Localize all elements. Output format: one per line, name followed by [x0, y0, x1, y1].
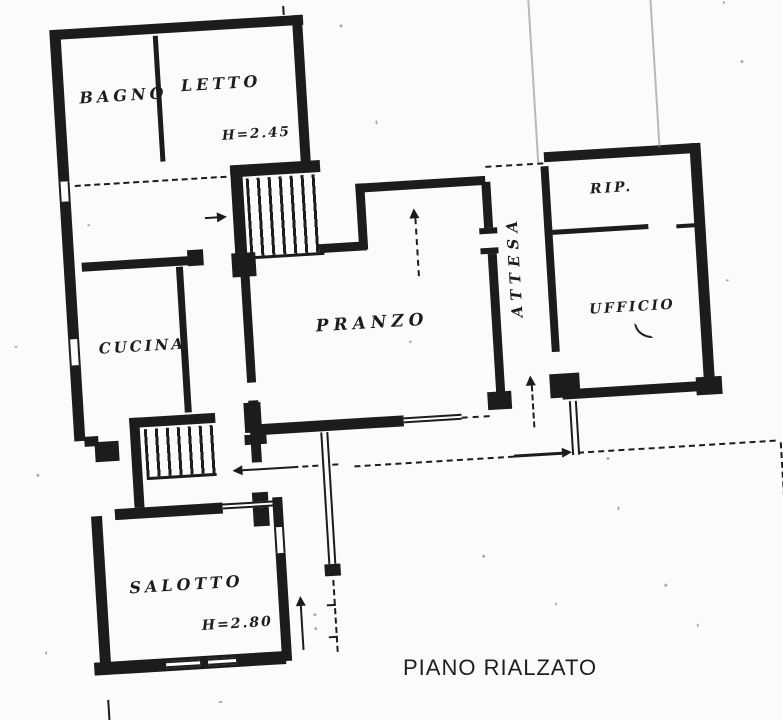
exit-arrow-line	[242, 466, 298, 471]
room-label-cucina: CUCINA	[98, 335, 186, 358]
partition-rip-ufficio	[552, 224, 648, 235]
projection-arrow-icon	[562, 447, 573, 458]
salotto-wall-right	[272, 497, 284, 528]
room-label-pranzo: PRANZO	[315, 310, 429, 337]
pranzo-wall-step	[355, 183, 368, 249]
scan-speck	[375, 120, 377, 124]
scan-speck	[45, 652, 47, 655]
floorplan-drawing: BAGNO LETTO H=2.45 CUCINA PRANZO SALOTTO…	[0, 0, 783, 720]
projection-dashline	[578, 440, 776, 454]
wall-pillar	[187, 249, 204, 266]
stair-wall	[129, 417, 144, 507]
exterior-wall-right	[689, 143, 715, 393]
attesa-partition	[540, 166, 559, 352]
north-arrow-icon	[295, 596, 306, 607]
stairs-hatch-icon	[144, 425, 217, 477]
window	[274, 527, 286, 554]
doorway-dashline	[462, 415, 490, 419]
boundary-line	[649, 0, 660, 147]
wall-pillar	[244, 434, 267, 445]
projection-dashline	[354, 456, 514, 468]
scan-speck	[555, 602, 557, 605]
window	[68, 339, 81, 366]
exit-arrow-dashline	[302, 463, 338, 467]
scan-speck	[482, 555, 485, 558]
room-label-salotto: SALOTTO	[129, 571, 244, 597]
exterior-wall-left	[60, 201, 79, 339]
salotto-wall-top	[115, 503, 223, 521]
scan-speck	[606, 457, 609, 460]
floorplan-sheet: BAGNO LETTO H=2.45 CUCINA PRANZO SALOTTO…	[0, 0, 783, 720]
partition-stub	[676, 223, 696, 228]
scan-speck	[87, 224, 90, 226]
pranzo-wall-left	[240, 270, 256, 382]
doorway-dashline	[485, 162, 543, 168]
scan-speck	[664, 584, 667, 587]
scan-speck	[14, 346, 17, 348]
scan-speck	[339, 24, 342, 27]
scan-speck	[219, 701, 223, 703]
height-note-salotto: H=2.80	[201, 614, 273, 634]
scan-speck	[409, 341, 412, 343]
salotto-wall-left	[91, 516, 112, 674]
terrace-edge-dashline	[332, 580, 338, 652]
pranzo-wall-top	[355, 176, 485, 193]
scan-speck	[313, 613, 316, 616]
pranzo-wall-right	[481, 182, 493, 228]
ufficio-wall-bottom	[562, 381, 702, 400]
entry-arrow-icon	[409, 208, 420, 219]
room-label-letto: LETTO	[180, 71, 262, 95]
exterior-wall-top	[51, 15, 303, 40]
scan-speck	[617, 506, 619, 510]
north-arrow-line	[300, 606, 305, 650]
plan-title: PIANO RIALZATO	[403, 655, 597, 681]
door-swing-icon	[634, 322, 653, 339]
exterior-wall-left	[49, 30, 69, 182]
exit-arrow-icon	[232, 465, 243, 476]
wall-pillar	[696, 376, 723, 396]
door-tick-arrow-icon	[217, 212, 228, 223]
entry-arrow-line	[414, 218, 420, 276]
window	[404, 414, 462, 424]
entry-arrow-line	[531, 385, 536, 427]
scan-speck	[697, 624, 699, 627]
height-note-letto: H=2.45	[222, 124, 292, 144]
scan-speck	[314, 627, 317, 630]
boundary-tick	[282, 6, 285, 15]
pranzo-wall-right	[488, 253, 506, 393]
door-pillar	[487, 391, 512, 410]
pranzo-wall-bottom	[254, 415, 404, 435]
terrace-edge	[320, 432, 336, 564]
edge-arrow-line	[107, 700, 111, 720]
room-label-ufficio: UFFICIO	[589, 297, 676, 318]
stairs-hatch-icon	[246, 174, 323, 256]
scan-speck	[36, 474, 39, 477]
room-label-rip: RIP.	[589, 179, 633, 198]
window	[59, 181, 71, 202]
room-label-attesa: ATTESA	[502, 201, 528, 332]
salotto-wall-right	[276, 553, 293, 661]
scan-speck	[726, 279, 729, 281]
boundary-line	[527, 0, 539, 163]
wall-pillar	[94, 441, 119, 462]
exterior-wall-top	[544, 143, 696, 162]
entry-arrow-icon	[525, 375, 536, 386]
room-label-bagno: BAGNO	[79, 83, 168, 107]
doorway-dashline	[75, 176, 227, 187]
scan-speck	[723, 1, 725, 4]
exterior-wall-right	[292, 15, 311, 169]
door-pillar	[479, 227, 497, 234]
door-pillar	[252, 492, 270, 527]
projection-line	[514, 452, 562, 458]
scan-speck	[740, 60, 743, 63]
exterior-wall-left	[70, 365, 86, 442]
wall-pillar	[324, 563, 341, 576]
